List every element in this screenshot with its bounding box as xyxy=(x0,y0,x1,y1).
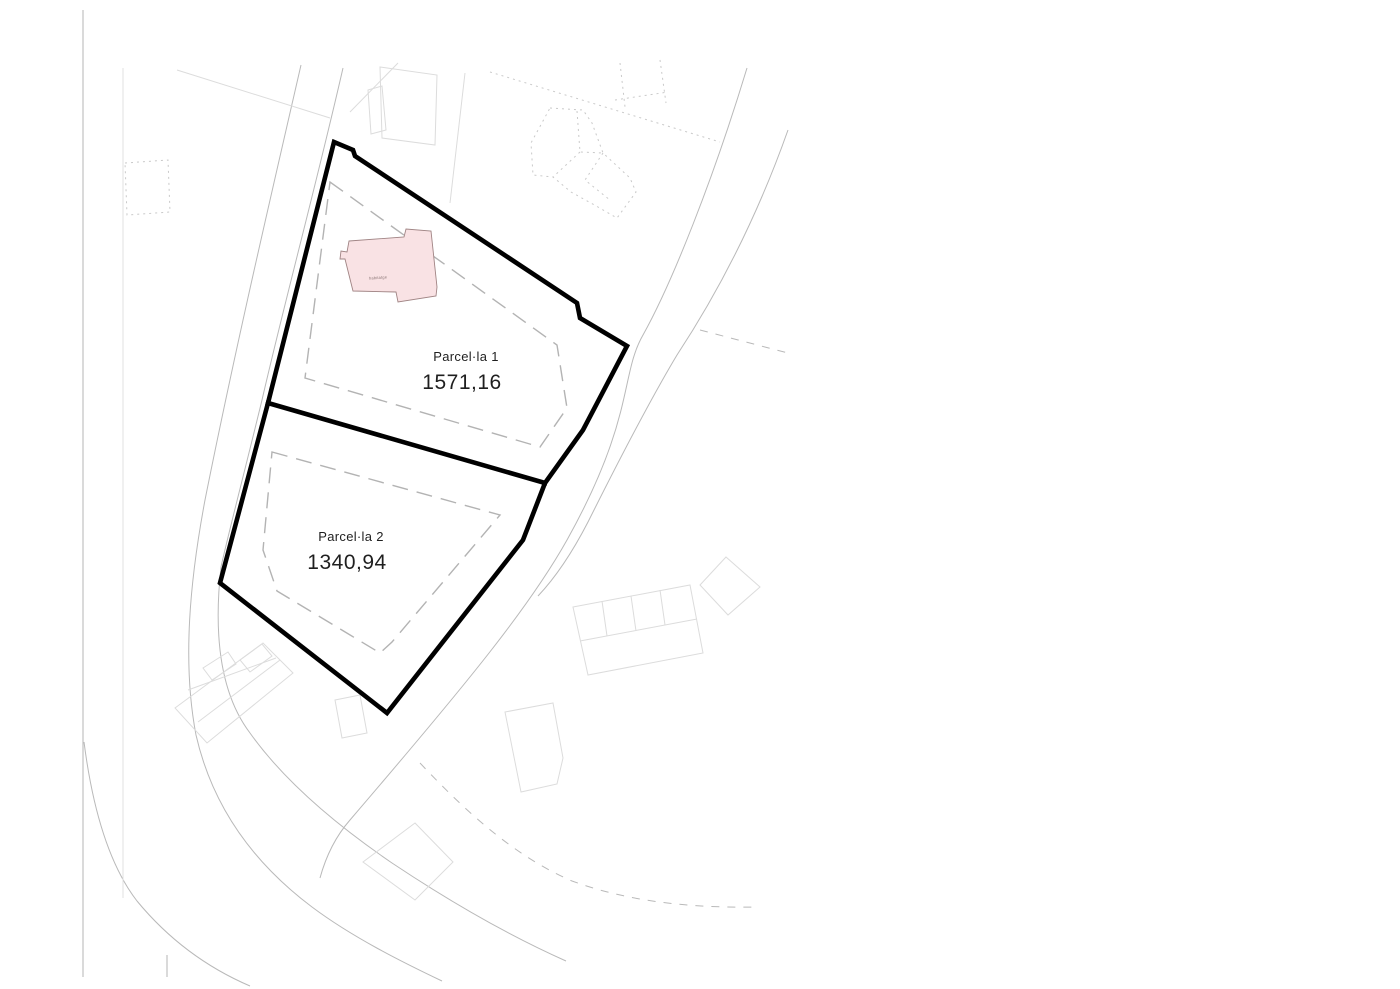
parcel-2-label: Parcel·la 2 xyxy=(318,529,383,544)
se-diamond xyxy=(700,557,760,615)
context-buildings xyxy=(125,60,760,900)
ne-cluster-inner-2 xyxy=(553,152,580,177)
parcel-1-area: 1571,16 xyxy=(422,371,501,394)
parcel-outer-boundary xyxy=(220,142,627,713)
property-line-north xyxy=(350,63,398,112)
sw-building-inner-2 xyxy=(198,660,280,722)
road-branch-east-dashed xyxy=(700,330,788,353)
sw-building-tab-1 xyxy=(240,644,272,672)
road-edge-east-inner xyxy=(320,68,747,878)
property-line-northeast-dotted xyxy=(490,72,720,142)
ne-dotted-stub-1 xyxy=(620,63,625,107)
context-roads xyxy=(84,63,788,986)
neighbor-building-north-large xyxy=(380,67,437,145)
ne-cluster-inner-3 xyxy=(585,153,610,200)
property-line-north-2 xyxy=(450,73,465,203)
setback-parcel-1 xyxy=(305,182,567,447)
road-edge-west-outer xyxy=(189,65,442,981)
parcel-2-area: 1340,94 xyxy=(307,551,386,574)
neighbor-building-west-dotted xyxy=(125,160,170,215)
road-edge-southwest-arc xyxy=(84,742,250,986)
neighbor-building-north-small xyxy=(368,86,386,134)
neighbor-building-southeast-cluster xyxy=(573,557,760,675)
road-edge-west-inner xyxy=(218,68,566,961)
parcel-division-line xyxy=(268,403,545,483)
se-grid-v2 xyxy=(631,596,636,631)
site-plan-canvas: habitatge Parcel·la 1 1571,16 Parcel·la … xyxy=(0,0,1400,989)
ne-dotted-stub-2 xyxy=(660,60,666,103)
neighbor-building-south-tall xyxy=(505,703,563,792)
road-edge-east-outer xyxy=(538,130,788,596)
ne-cluster-outline xyxy=(531,108,636,218)
parcel-1-label: Parcel·la 1 xyxy=(433,349,498,364)
se-grid-mid xyxy=(580,619,697,641)
road-centerline-south-dashed xyxy=(420,763,758,907)
ne-cluster-inner-1 xyxy=(577,111,603,153)
sheet-frame xyxy=(83,10,167,977)
parcel-boundaries xyxy=(220,142,627,713)
site-plan-page: habitatge Parcel·la 1 1571,16 Parcel·la … xyxy=(0,0,1400,989)
neighbor-building-northeast-cluster xyxy=(531,60,668,218)
se-grid-v1 xyxy=(602,601,607,636)
property-line-northwest xyxy=(177,70,330,118)
building-footprint: habitatge xyxy=(340,229,437,302)
neighbor-building-south-diamond xyxy=(363,823,453,900)
sw-building-small xyxy=(335,695,367,738)
se-grid-v3 xyxy=(660,590,665,625)
neighbor-building-southwest-cluster xyxy=(175,643,367,743)
building-polygon xyxy=(340,229,437,302)
